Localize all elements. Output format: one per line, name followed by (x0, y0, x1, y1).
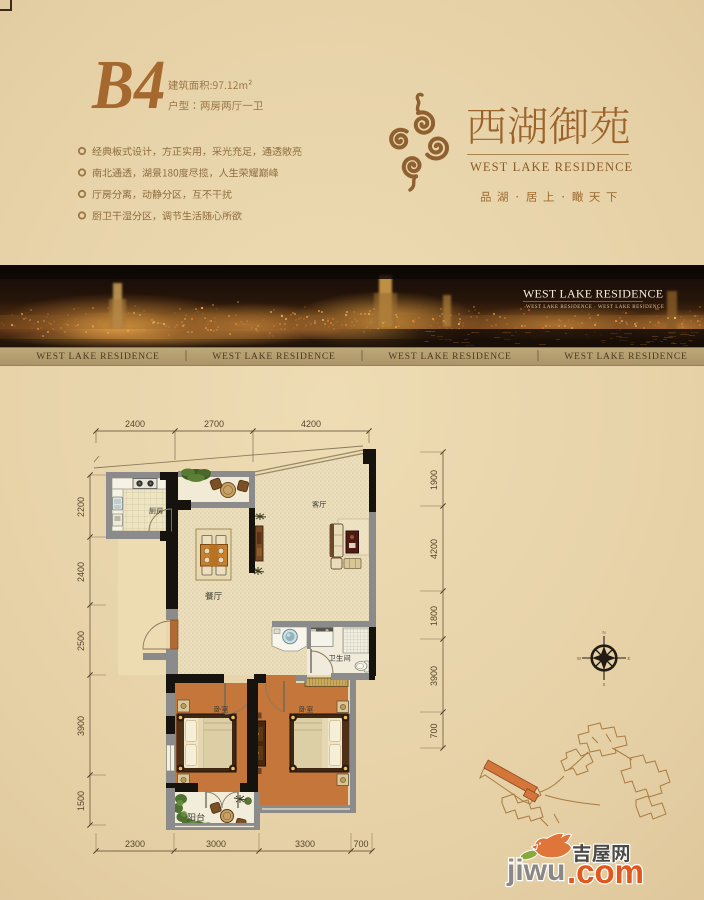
svg-text:WEST LAKE RESIDENCE · WEST LAK: WEST LAKE RESIDENCE · WEST LAKE RESIDENC… (526, 305, 664, 310)
svg-text:2400: 2400 (125, 419, 145, 429)
svg-text:W: W (577, 656, 582, 661)
svg-text:1500: 1500 (76, 791, 86, 811)
svg-text:3900: 3900 (76, 716, 86, 736)
svg-text:2300: 2300 (125, 839, 145, 849)
svg-text:700: 700 (429, 723, 439, 738)
svg-text:jiwu: jiwu (506, 854, 565, 887)
svg-text:4200: 4200 (429, 539, 439, 559)
svg-text:E: E (627, 656, 630, 661)
svg-text:WEST LAKE RESIDENCE: WEST LAKE RESIDENCE (564, 352, 687, 362)
svg-text:.com: .com (567, 853, 644, 890)
svg-text:WEST LAKE RESIDENCE: WEST LAKE RESIDENCE (523, 287, 663, 301)
svg-text:4200: 4200 (301, 419, 321, 429)
svg-text:3900: 3900 (429, 666, 439, 686)
svg-text:WEST LAKE RESIDENCE: WEST LAKE RESIDENCE (212, 352, 335, 362)
svg-text:WEST LAKE RESIDENCE: WEST LAKE RESIDENCE (388, 352, 511, 362)
svg-text:WEST LAKE RESIDENCE: WEST LAKE RESIDENCE (36, 352, 159, 362)
svg-text:1900: 1900 (429, 470, 439, 490)
svg-text:3000: 3000 (206, 839, 226, 849)
svg-text:2400: 2400 (76, 562, 86, 582)
svg-text:N: N (602, 630, 605, 635)
svg-text:S: S (602, 682, 605, 687)
svg-text:1800: 1800 (429, 606, 439, 626)
svg-text:2700: 2700 (204, 419, 224, 429)
svg-text:700: 700 (353, 839, 368, 849)
svg-text:2500: 2500 (76, 631, 86, 651)
svg-text:3300: 3300 (295, 839, 315, 849)
svg-text:2200: 2200 (76, 497, 86, 517)
